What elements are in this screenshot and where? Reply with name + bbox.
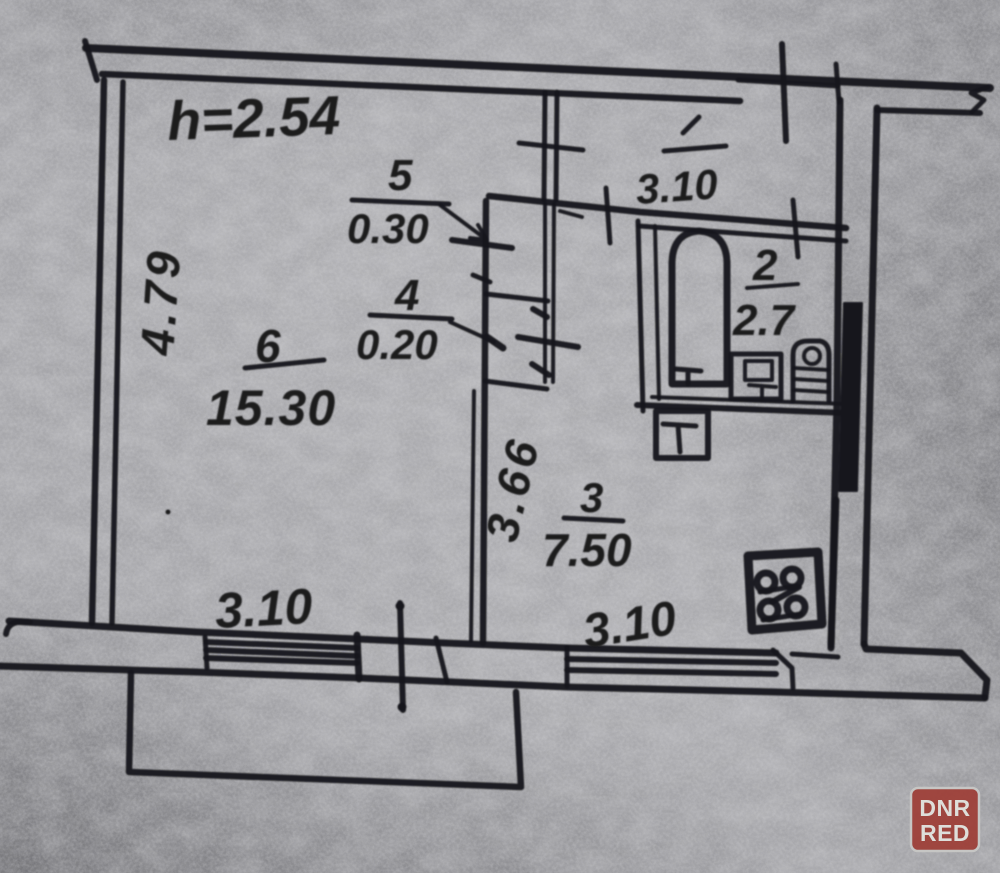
svg-text:4: 4 (394, 271, 419, 320)
svg-text:4.79: 4.79 (130, 246, 190, 358)
svg-text:0.20: 0.20 (356, 321, 438, 368)
svg-text:DNR: DNR (919, 795, 970, 821)
svg-text:2: 2 (752, 241, 778, 290)
svg-text:3: 3 (580, 474, 603, 521)
svg-text:0.30: 0.30 (347, 205, 429, 252)
svg-text:RED: RED (920, 820, 970, 846)
svg-text:h=2.54: h=2.54 (166, 84, 341, 152)
svg-text:3.10: 3.10 (634, 160, 719, 213)
svg-text:5: 5 (388, 151, 413, 200)
svg-text:6: 6 (255, 320, 281, 372)
svg-text:15.30: 15.30 (206, 380, 336, 436)
svg-text:3.10: 3.10 (214, 578, 314, 639)
svg-text:7.50: 7.50 (542, 524, 632, 576)
svg-text:2.7: 2.7 (732, 296, 797, 345)
